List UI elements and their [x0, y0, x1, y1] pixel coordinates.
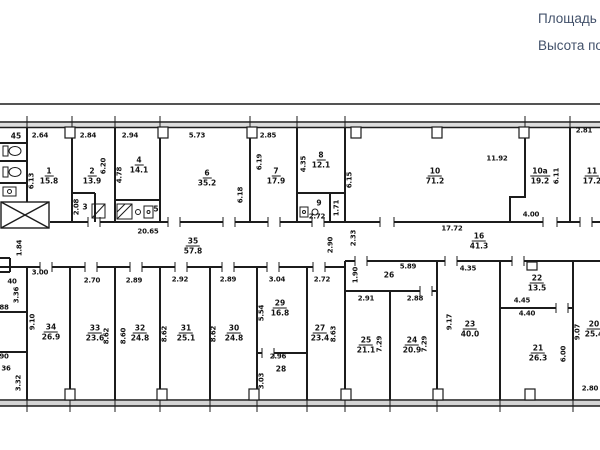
dimension-label: 2.84: [80, 133, 96, 140]
dimension-label: 5.54: [259, 305, 266, 321]
dimension-label: 2.89: [220, 277, 236, 284]
room-label: 2723.4: [311, 324, 330, 343]
dimension-label: 2.70: [84, 278, 100, 285]
room-label: 2916.8: [271, 299, 290, 318]
room-label: 213.9: [83, 167, 102, 186]
dimension-label: 2.33: [351, 230, 358, 246]
room-label: 2340.0: [461, 320, 480, 339]
top-wall-fill: [0, 123, 600, 127]
floor-plan: [0, 0, 600, 450]
room-label: 3024.8: [225, 324, 244, 343]
dimension-label: 3.32: [16, 375, 23, 391]
dimension-label: 2.80: [582, 386, 598, 393]
dimension-label: 2.90: [328, 237, 335, 253]
dimension-label: 2.89: [126, 278, 142, 285]
dimension-label: 2.08: [74, 199, 81, 215]
dimension-label: 2.92: [172, 277, 188, 284]
dimension-label: 6.00: [561, 346, 568, 362]
dimension-label: 5.89: [400, 264, 416, 271]
room-label: 2521.1: [357, 336, 376, 355]
dimension-label: 1.71: [334, 200, 341, 216]
room-label: 5: [153, 205, 158, 214]
room-label: 635.2: [198, 169, 217, 188]
dimension-label: 6.13: [29, 173, 36, 189]
room-label: 3426.9: [42, 323, 61, 342]
dimension-label: 6.15: [347, 172, 354, 188]
room-label: 3224.8: [131, 324, 150, 343]
dimension-label: 7.29: [422, 336, 429, 352]
dimension-label: 7.29: [377, 336, 384, 352]
room-label: 115.8: [40, 167, 59, 186]
room-label: 3323.6: [86, 324, 105, 343]
dimension-label: 90: [0, 354, 9, 361]
dimension-label: 4.40: [519, 311, 535, 318]
dimension-label: 5.73: [189, 133, 205, 140]
dimension-label: 36: [1, 366, 10, 373]
room-label: 2126.3: [529, 344, 548, 363]
dimension-label: 2.72: [309, 214, 325, 221]
room-label: 2025.4: [585, 320, 600, 339]
dimension-label: 8.63: [331, 326, 338, 342]
dimension-label: 3.04: [269, 277, 285, 284]
room-label: 2420.9: [403, 336, 422, 355]
room-label: 3125.1: [177, 324, 196, 343]
room-label: 717.9: [267, 167, 286, 186]
dimension-label: 8.62: [104, 328, 111, 344]
room-label: 10а19.2: [530, 167, 550, 186]
room-label: 414.1: [130, 156, 149, 175]
dimension-label: 4.45: [514, 298, 530, 305]
dimension-label: 6.11: [554, 168, 561, 184]
dimension-label: 6.18: [238, 187, 245, 203]
dimension-label: 4.35: [460, 266, 476, 273]
dimension-label: 17.72: [441, 226, 462, 233]
dimension-label: 2.91: [358, 296, 374, 303]
dimension-label: 1.90: [353, 267, 360, 283]
dimension-label: 8.62: [162, 326, 169, 342]
shaft-icon: [1, 202, 49, 228]
room-label: 812.1: [312, 151, 331, 170]
dimension-label: 2.88: [407, 296, 423, 303]
dimension-label: 4.35: [301, 156, 308, 172]
room-label: 2213.5: [528, 274, 547, 293]
dimension-label: 2.96: [270, 354, 286, 361]
dimension-label: 9.10: [30, 314, 37, 330]
dimension-label: 3.00: [32, 270, 48, 277]
room-label: 3: [82, 203, 87, 212]
dimension-label: 2.72: [314, 277, 330, 284]
dimension-label: 6.19: [257, 154, 264, 170]
dimension-label: 9.07: [575, 324, 582, 340]
dimension-label: 3.03: [259, 373, 266, 389]
dimension-label: 9.17: [447, 314, 454, 330]
dimension-label: 2.85: [260, 133, 276, 140]
room-label: 26: [384, 271, 394, 280]
dimension-label: 3.36: [14, 287, 21, 303]
dimension-label: 20.65: [137, 229, 158, 236]
shower-icon: [117, 204, 153, 219]
dimension-label: 8.62: [211, 326, 218, 342]
door-icon: [92, 204, 105, 218]
room-label: 45: [11, 132, 21, 141]
room-label: 1117.2: [583, 167, 600, 186]
dimension-label: 4.00: [523, 212, 539, 219]
room-label: 1071.2: [426, 167, 445, 186]
room-label: 3557.8: [184, 237, 203, 256]
page: Площадь С Высота по: [0, 0, 600, 450]
dimension-label: 8.60: [121, 328, 128, 344]
bottom-wall-fill: [0, 401, 600, 406]
room-label: 9: [316, 199, 321, 208]
dimension-label: 2.81: [576, 128, 592, 135]
dimension-label: 2.94: [122, 133, 138, 140]
dimension-label: 11.92: [486, 156, 507, 163]
dimension-label: 2.64: [32, 133, 48, 140]
dimension-label: 6.20: [101, 158, 108, 174]
room-label: 28: [276, 365, 286, 374]
sink-icon: [3, 187, 16, 196]
dimension-label: 1.84: [17, 240, 24, 256]
room-label: 1641.3: [470, 232, 489, 251]
dimension-label: 40: [7, 279, 16, 286]
exterior-walls: [0, 104, 600, 406]
dimension-label: 4.78: [117, 167, 124, 183]
dimension-label: 88: [0, 305, 9, 312]
